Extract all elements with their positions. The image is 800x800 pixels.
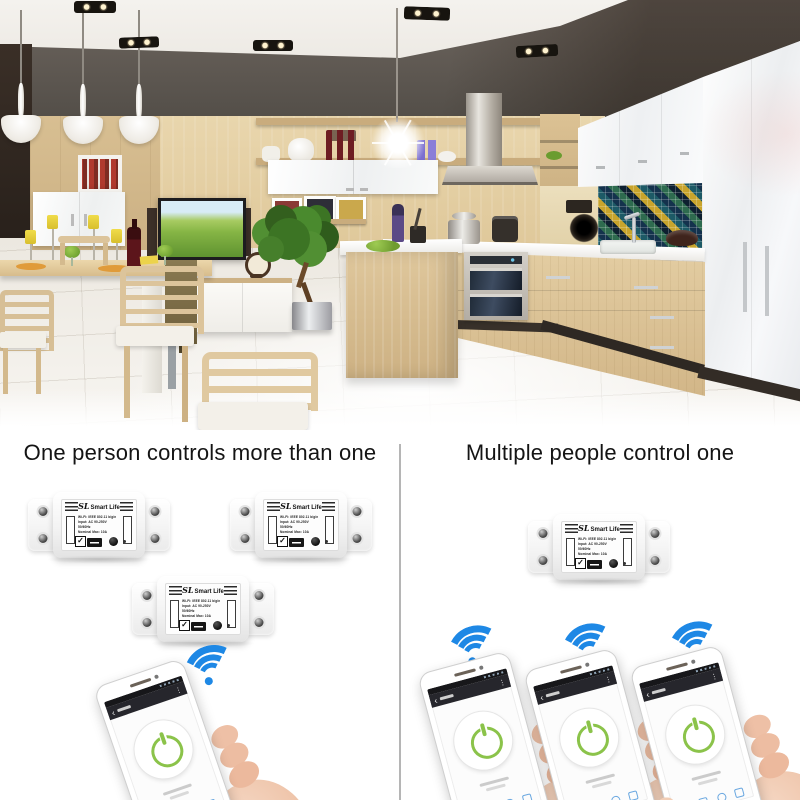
chair-cushion — [116, 326, 194, 346]
white-pitcher — [288, 138, 314, 162]
ceiling-spotlight — [404, 6, 450, 21]
camera-icon — [479, 665, 484, 670]
dark-pot — [492, 216, 518, 242]
camera-icon — [691, 659, 696, 664]
pendant-lamp-neck — [136, 84, 142, 120]
smart-switch: SLSmart Life Wi-Fi: IEEE 802.11 b/g/nInp… — [28, 492, 170, 558]
plate — [16, 263, 46, 270]
speaker-icon — [560, 665, 582, 674]
nav-icon — [610, 795, 621, 800]
smart-life-logo-icon: SL — [280, 501, 291, 511]
app-title-bar — [652, 688, 666, 694]
pendant-cord — [82, 10, 84, 85]
candle — [47, 215, 58, 229]
app-body — [644, 681, 754, 800]
wine-bottle-table — [127, 227, 141, 268]
candle-stem — [93, 229, 95, 260]
led-dot-icon — [325, 540, 328, 543]
led-dot-icon — [623, 562, 626, 565]
power-icon — [467, 723, 506, 762]
check-icon: ✓ — [277, 536, 288, 547]
clock-base — [250, 274, 263, 278]
back-icon: ‹ — [433, 695, 438, 705]
candle — [25, 230, 36, 244]
back-icon: ‹ — [539, 692, 544, 702]
frame-shelf — [266, 219, 366, 224]
screw-icon — [151, 534, 160, 543]
smart-life-logo-icon: SL — [78, 501, 89, 511]
heading-right: Multiple people control one — [400, 440, 800, 466]
island-body — [346, 252, 458, 378]
power-button-circle — [127, 713, 201, 787]
brand-name: Smart Life — [195, 589, 224, 595]
open-shelf-books — [78, 155, 122, 193]
range-hood — [442, 166, 538, 185]
switch-body: SLSmart Life Wi-Fi: IEEE 802.11 b/g/nInp… — [553, 514, 645, 580]
plant-foliage — [258, 236, 284, 262]
check-icon: ✓ — [179, 620, 190, 631]
brand-name: Smart Life — [591, 527, 620, 533]
chair-leg — [182, 346, 188, 422]
faucet — [632, 217, 636, 243]
speaker-icon — [666, 662, 688, 671]
spec-text: Wi-Fi: IEEE 802.11 b/g/nInput: AC 90-250… — [578, 537, 620, 557]
screw-icon — [255, 591, 264, 600]
terminal-ticks-icon — [169, 586, 182, 595]
oven-control-panel — [470, 256, 522, 264]
nav-icon — [734, 787, 745, 798]
oven-door-glass — [470, 294, 522, 316]
oven-door-glass — [470, 268, 522, 290]
ceiling-spotlight — [119, 36, 159, 48]
screw-icon — [151, 507, 160, 516]
brand-name: Smart Life — [293, 505, 322, 511]
hand-with-phone: ‹⋮ — [69, 647, 281, 800]
candle-stem — [30, 244, 32, 260]
brand-logo: SLSmart Life — [280, 501, 322, 511]
terminal-ticks-icon — [620, 524, 633, 533]
spec-text: Wi-Fi: IEEE 802.11 b/g/nInput: AC 90-250… — [78, 515, 120, 535]
led-dot-icon — [123, 540, 126, 543]
wine-bottles — [326, 130, 356, 162]
power-icon — [147, 731, 188, 772]
menu-icon: ⋮ — [710, 671, 719, 681]
candle — [111, 229, 122, 243]
back-icon: ‹ — [645, 689, 650, 699]
phone-screen: ‹⋮ — [639, 662, 754, 800]
app-title-bar — [440, 694, 454, 700]
smart-life-logo-icon: SL — [182, 585, 193, 595]
smart-switch: SLSmart Life Wi-Fi: IEEE 802.11 b/g/nInp… — [132, 576, 274, 642]
terminal-bracket — [170, 600, 179, 628]
switch-body: SLSmart Life Wi-Fi: IEEE 802.11 b/g/nInp… — [53, 492, 145, 558]
ceiling-spotlight — [516, 44, 559, 58]
led-dot-icon — [227, 624, 230, 627]
screw-icon — [143, 591, 152, 600]
reset-button-icon — [311, 537, 320, 546]
menu-icon: ⋮ — [174, 685, 183, 695]
switch-label: SLSmart Life Wi-Fi: IEEE 802.11 b/g/nInp… — [561, 521, 637, 573]
screw-icon — [353, 534, 362, 543]
spec-text: Wi-Fi: IEEE 802.11 b/g/nInput: AC 90-250… — [182, 599, 224, 619]
heading-left: One person controls more than one — [0, 440, 400, 466]
tall-pantry-cabinet — [703, 30, 800, 400]
nav-icon — [716, 792, 727, 800]
check-icon: ✓ — [575, 558, 586, 569]
terminal-bracket — [268, 516, 277, 544]
candle-stem — [116, 243, 118, 260]
terminal-ticks-icon — [267, 502, 280, 511]
terminal-bracket — [66, 516, 75, 544]
chair-leg — [124, 346, 130, 418]
pendant-cord — [20, 10, 22, 84]
app-title-bar — [546, 691, 560, 697]
pendant-lamp-neck — [80, 84, 86, 120]
terminal-ticks-icon — [224, 586, 237, 595]
power-icon — [573, 720, 612, 759]
speaker-icon — [454, 668, 476, 677]
phone-screen: ‹⋮ — [104, 676, 227, 800]
terminal-ticks-icon — [322, 502, 335, 511]
screw-icon — [39, 534, 48, 543]
bottom-nav — [145, 796, 225, 800]
glass-stem — [71, 257, 73, 266]
switch-body: SLSmart Life Wi-Fi: IEEE 802.11 b/g/nInp… — [255, 492, 347, 558]
screw-icon — [39, 507, 48, 516]
green-bowl — [546, 151, 562, 160]
chair-back — [120, 266, 204, 334]
tv-side-panel — [147, 208, 157, 256]
pendant-lamp-neck — [18, 83, 24, 119]
ceiling-spotlight — [253, 40, 293, 51]
power-icon — [679, 717, 718, 756]
screw-icon — [651, 556, 660, 565]
black-pans — [566, 212, 602, 244]
brand-logo: SLSmart Life — [78, 501, 120, 511]
reset-button-icon — [609, 559, 618, 568]
back-icon: ‹ — [110, 707, 116, 717]
chair-leg — [36, 348, 41, 394]
switch-body: SLSmart Life Wi-Fi: IEEE 802.11 b/g/nInp… — [157, 576, 249, 642]
chair-cushion — [0, 332, 46, 348]
chair-back — [58, 236, 110, 243]
check-icon: ✓ — [75, 536, 86, 547]
chair-cushion — [198, 402, 308, 430]
brown-bowl — [666, 230, 698, 246]
terminal-ticks-icon — [120, 502, 133, 511]
switch-label: SLSmart Life Wi-Fi: IEEE 802.11 b/g/nInp… — [263, 499, 339, 551]
section-divider — [399, 444, 401, 800]
bottle-neck — [132, 219, 137, 229]
green-fruit-bowl — [366, 240, 400, 252]
screw-icon — [353, 507, 362, 516]
glass-stem — [164, 256, 166, 265]
smart-switch: SLSmart Life Wi-Fi: IEEE 802.11 b/g/nInp… — [230, 492, 372, 558]
reset-button-icon — [109, 537, 118, 546]
switch-label: SLSmart Life Wi-Fi: IEEE 802.11 b/g/nInp… — [165, 583, 241, 635]
sink — [600, 240, 656, 254]
switch-label: SLSmart Life Wi-Fi: IEEE 802.11 b/g/nInp… — [61, 499, 137, 551]
terminal-bracket — [566, 538, 575, 566]
brand-logo: SLSmart Life — [578, 523, 620, 533]
chair-post — [60, 243, 65, 265]
spec-text: Wi-Fi: IEEE 802.11 b/g/nInput: AC 90-250… — [280, 515, 322, 535]
sideboard — [192, 278, 292, 332]
app-title-bar — [117, 705, 131, 712]
steel-pot-lid — [452, 212, 476, 220]
built-in-oven — [464, 252, 528, 320]
cert-badge — [87, 538, 102, 547]
smart-switch: SLSmart Life Wi-Fi: IEEE 802.11 b/g/nInp… — [528, 514, 670, 580]
brand-logo: SLSmart Life — [182, 585, 224, 595]
napkin — [140, 255, 159, 265]
white-bowl — [438, 151, 456, 162]
candle — [88, 215, 99, 229]
power-button-circle — [660, 699, 731, 770]
screw-icon — [651, 529, 660, 538]
camera-icon — [154, 674, 159, 679]
terminal-ticks-icon — [565, 524, 578, 533]
chair-post — [103, 243, 108, 265]
camera-icon — [585, 662, 590, 667]
kitchen-photo — [0, 0, 800, 430]
brand-name: Smart Life — [91, 505, 120, 511]
candle-stem — [52, 229, 54, 260]
screw-icon — [539, 529, 548, 538]
screw-icon — [241, 534, 250, 543]
bottom-nav — [672, 785, 754, 800]
dandelion-lamp — [371, 118, 425, 168]
range-hood-chimney — [466, 93, 502, 169]
terminal-ticks-icon — [65, 502, 78, 511]
ceiling-spotlight — [74, 1, 116, 13]
purple-bottle — [392, 204, 404, 242]
pendant-cord — [396, 8, 398, 122]
plant-pot — [292, 302, 332, 330]
cert-badge — [191, 622, 206, 631]
cert-badge — [289, 538, 304, 547]
chair-leg — [3, 348, 8, 394]
screw-icon — [539, 556, 548, 565]
smart-life-logo-icon: SL — [578, 523, 589, 533]
product-image: One person controls more than one Multip… — [0, 0, 800, 800]
screw-icon — [143, 618, 152, 627]
screw-icon — [255, 618, 264, 627]
reset-button-icon — [213, 621, 222, 630]
cert-badge — [587, 560, 602, 569]
screw-icon — [241, 507, 250, 516]
